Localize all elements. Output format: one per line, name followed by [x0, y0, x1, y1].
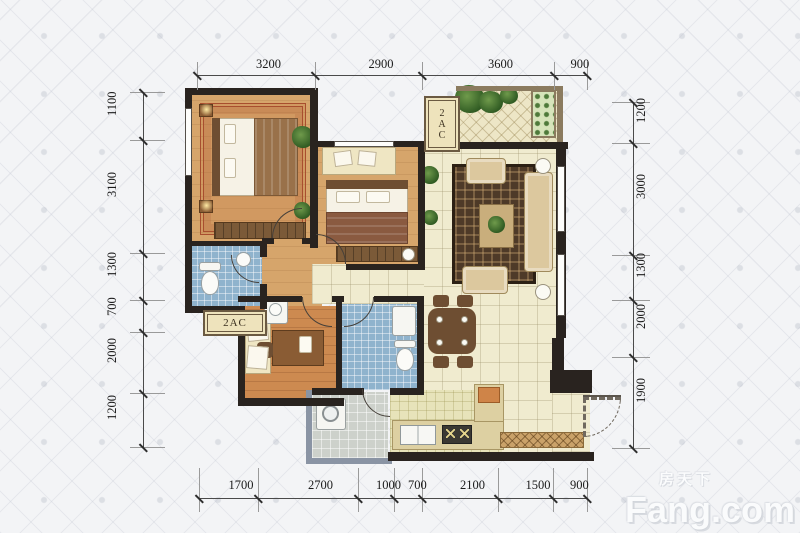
watermark-brand-cn: 房天下 [659, 468, 795, 489]
door-arc-icon [583, 397, 621, 437]
wall-segment [192, 241, 262, 246]
ac-platform-top: 2AC [424, 96, 460, 152]
plate-icon [436, 339, 443, 346]
bay-cushion-icon [333, 150, 353, 167]
cutting-board-icon [478, 387, 500, 403]
dim-extension [130, 393, 165, 394]
bay-cushion-icon [357, 150, 376, 167]
kitchen-sink-icon [400, 425, 436, 445]
dining-chair-icon [457, 356, 473, 368]
bedroom2-bed-headboard [326, 180, 408, 189]
ac-platform-top-label: 2AC [437, 108, 448, 141]
toilet-icon [396, 348, 414, 371]
window-icon [334, 141, 394, 147]
dim-extension [199, 468, 200, 512]
toilet-icon [201, 271, 219, 295]
side-table-icon [535, 284, 551, 300]
dim-extension [130, 332, 165, 333]
ottoman-icon [402, 248, 415, 261]
nightstand-lamp-icon [200, 103, 213, 116]
study-cushion-icon [246, 345, 269, 370]
loveseat-icon [462, 266, 508, 294]
dimension-line-top [197, 75, 587, 76]
watermark: 房天下 Fang.com [625, 468, 795, 531]
wall-segment [310, 88, 318, 248]
master-bed-blanket [254, 118, 298, 196]
wall-segment [390, 388, 424, 395]
dining-chair-icon [457, 295, 473, 307]
plant-icon [488, 216, 505, 233]
window-icon [185, 108, 192, 176]
wall-segment [456, 142, 568, 149]
window-icon [557, 254, 565, 316]
wall-segment [336, 296, 342, 392]
plant-icon [423, 210, 438, 225]
watermark-brand-en: Fang.com [625, 489, 795, 531]
floor-plan: 3200290036009001700270010007002100150090… [0, 0, 800, 533]
wall-segment [238, 398, 344, 406]
entry-door-leaf [583, 395, 621, 397]
wall-segment [185, 88, 317, 95]
toilet-icon [394, 340, 416, 348]
toilet-icon [199, 262, 221, 271]
master-pillow-icon [224, 158, 236, 178]
floor-plan-image: 3200290036009001700270010007002100150090… [0, 0, 800, 533]
nightstand-lamp-icon [200, 199, 213, 212]
dim-extension [130, 140, 165, 141]
sink-icon [269, 303, 282, 316]
armchair-icon [466, 158, 506, 184]
dim-extension [130, 447, 165, 448]
window-icon [557, 166, 565, 232]
plate-icon [461, 339, 468, 346]
wall-segment [238, 296, 302, 302]
desk-paper [299, 336, 312, 353]
wall-segment [312, 388, 364, 395]
master-bed-headboard [212, 118, 220, 196]
wall-segment [418, 147, 425, 270]
dim-extension [498, 468, 499, 512]
plate-icon [461, 316, 468, 323]
dim-extension [358, 468, 359, 512]
side-table-icon [535, 158, 551, 174]
wall-segment [302, 238, 312, 244]
wall-segment [552, 338, 564, 372]
plate-icon [436, 316, 443, 323]
sofa-icon [524, 172, 553, 272]
stove-burner-icon [446, 429, 455, 438]
stove-burner-icon [460, 429, 469, 438]
ac-platform-left-label: 2AC [223, 317, 247, 329]
dining-chair-icon [433, 356, 449, 368]
shoe-cabinet-icon [500, 432, 584, 448]
planter-box-icon [531, 90, 556, 138]
dining-table-icon [428, 308, 476, 354]
washing-machine-door [322, 405, 339, 422]
wall-segment [388, 452, 594, 461]
bedroom2-pillow-icon [366, 191, 390, 203]
dim-extension [553, 468, 554, 512]
dim-extension [130, 92, 165, 93]
wall-segment [550, 370, 592, 393]
ac-platform-left: 2AC [203, 310, 267, 336]
garden-railing [557, 86, 563, 146]
desk-icon [272, 330, 324, 366]
dim-extension [130, 300, 165, 301]
wall-segment [262, 238, 274, 244]
bedroom2-pillow-icon [336, 191, 360, 203]
dim-extension [130, 253, 165, 254]
sink-icon [392, 306, 416, 336]
garden-railing [456, 86, 562, 91]
dining-chair-icon [433, 295, 449, 307]
master-pillow-icon [224, 124, 236, 144]
dim-extension [258, 468, 259, 512]
balcony-railing [306, 458, 392, 464]
wall-segment [417, 296, 424, 392]
wall-segment [346, 264, 422, 270]
bedroom2-bed-blanket [326, 212, 408, 244]
